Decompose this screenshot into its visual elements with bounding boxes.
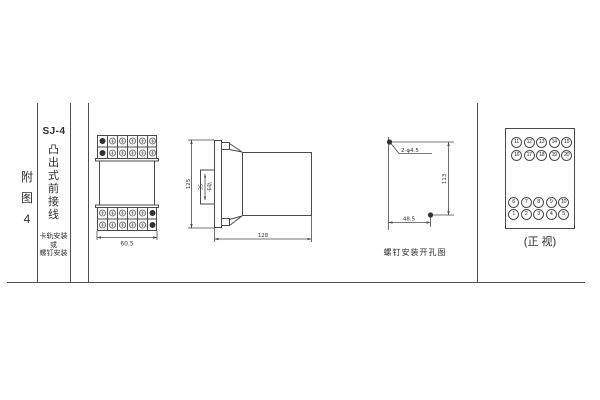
hole-diameter-label: 2-φ4.5 bbox=[401, 148, 419, 154]
front-view-outline bbox=[96, 136, 159, 231]
terminal: 4 bbox=[546, 209, 557, 220]
terminal: 1 bbox=[508, 209, 519, 220]
side-height-dimension: 125 bbox=[186, 178, 192, 189]
terminal: 6 bbox=[508, 197, 519, 208]
terminal-row: 11 12 13 14 15 bbox=[506, 137, 574, 148]
terminal: 5 bbox=[558, 209, 569, 220]
terminal: 10 bbox=[558, 197, 569, 208]
mounting-note-line: 或 bbox=[37, 242, 70, 251]
drill-view-caption: 螺钉安装开孔图 bbox=[377, 247, 453, 258]
terminal: 20 bbox=[561, 150, 572, 161]
frame-vertical-line bbox=[88, 103, 89, 282]
frame-vertical-line bbox=[70, 103, 71, 282]
model-label: SJ-4 bbox=[38, 126, 70, 137]
terminal: 11 bbox=[511, 137, 522, 148]
frame-bottom-line bbox=[7, 282, 585, 283]
terminal-face-panel: 11 12 13 14 15 16 17 18 19 20 6 7 8 9 10… bbox=[505, 128, 575, 229]
terminal: 18 bbox=[536, 150, 547, 161]
dimension-arrows bbox=[389, 142, 450, 224]
width-dimension-lines bbox=[97, 231, 157, 240]
terminal: 8 bbox=[533, 197, 544, 208]
frame-vertical-line bbox=[477, 103, 478, 282]
terminal-group-upper: 11 12 13 14 15 16 17 18 19 20 bbox=[506, 137, 574, 161]
rail-height-dimension: 35 bbox=[199, 184, 205, 190]
terminal: 9 bbox=[546, 197, 557, 208]
terminal: 12 bbox=[524, 137, 535, 148]
drill-horizontal-dimension: 48.5 bbox=[403, 217, 416, 223]
terminal: 14 bbox=[549, 137, 560, 148]
terminal: 16 bbox=[511, 150, 522, 161]
terminal: 13 bbox=[536, 137, 547, 148]
terminal: 7 bbox=[521, 197, 532, 208]
terminal-view-caption: (正 视) bbox=[503, 233, 577, 249]
mounting-note-line: 螺钉安装 bbox=[37, 250, 70, 259]
terminal-row: 16 17 18 19 20 bbox=[506, 150, 574, 161]
rail-label: 卡轨 bbox=[207, 182, 214, 192]
terminal: 17 bbox=[524, 150, 535, 161]
front-width-dimension: 60.5 bbox=[120, 241, 134, 248]
drill-vertical-dimension: 113 bbox=[442, 173, 448, 184]
front-view-drawing: 60.5 bbox=[95, 133, 159, 249]
terminal-row: 6 7 8 9 10 bbox=[506, 197, 574, 208]
side-depth-dimension: 128 bbox=[258, 233, 269, 239]
side-view-drawing: 125 35 卡轨 128 bbox=[186, 132, 318, 248]
mounting-note-line: 卡轨安装 bbox=[37, 233, 70, 242]
terminal: 19 bbox=[549, 150, 560, 161]
side-view-outline bbox=[201, 141, 312, 228]
figure-number-label: 附图4 bbox=[20, 167, 34, 230]
mounting-note: 卡轨安装 或 螺钉安装 bbox=[37, 233, 70, 259]
terminal: 3 bbox=[533, 209, 544, 220]
terminal: 2 bbox=[521, 209, 532, 220]
wiring-style-label: 凸出式前接线 bbox=[47, 144, 60, 222]
terminal-row: 1 2 3 4 5 bbox=[506, 209, 574, 220]
drill-hole-drawing: 2-φ4.5 113 48.5 bbox=[370, 130, 475, 240]
terminal-group-lower: 6 7 8 9 10 1 2 3 4 5 bbox=[506, 197, 574, 221]
terminal: 15 bbox=[561, 137, 572, 148]
